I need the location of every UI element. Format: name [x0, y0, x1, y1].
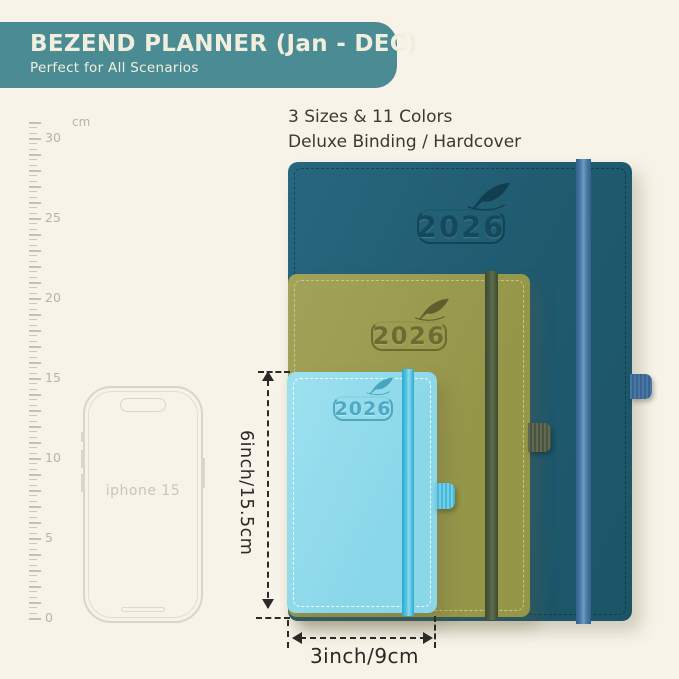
ruler-tick — [29, 538, 41, 540]
planner-small-elastic-band — [402, 369, 414, 616]
dim-width-left-tick — [287, 620, 289, 648]
planner-large-pen-loop — [630, 374, 652, 399]
planner-medium-emboss: 2026 — [371, 321, 447, 351]
ruler-tick — [29, 389, 37, 390]
feather-icon — [465, 182, 513, 212]
ruler-tick — [29, 271, 37, 272]
ruler-tick — [29, 575, 37, 576]
arrow-up-icon — [262, 371, 274, 381]
ruler-tick — [29, 127, 37, 128]
planner-small-year: 2026 — [333, 396, 393, 421]
ruler-tick — [29, 410, 41, 412]
feature-line-sizes: 3 Sizes & 11 Colors — [288, 105, 521, 130]
ruler-tick — [29, 186, 41, 188]
ruler-tick — [29, 319, 37, 320]
ruler-tick — [29, 138, 41, 140]
dim-width-line — [300, 637, 426, 639]
ruler-tick — [29, 202, 41, 204]
ruler-tick — [29, 191, 37, 192]
ruler-tick — [29, 522, 41, 524]
planner-large-year: 2026 — [417, 209, 505, 244]
ruler-tick — [29, 549, 37, 550]
planner-small: 2026 — [287, 372, 437, 613]
ruler-tick — [29, 431, 37, 432]
ruler-tick — [29, 479, 37, 480]
ruler-tick — [29, 490, 41, 492]
ruler-tick — [29, 458, 41, 460]
ruler-tick — [29, 277, 37, 278]
ruler-tick — [29, 415, 37, 416]
ruler-tick — [29, 266, 41, 268]
width-dimension-label: 3inch/9cm — [292, 644, 437, 668]
ruler-tick — [29, 197, 37, 198]
feature-text: 3 Sizes & 11 Colors Deluxe Binding / Har… — [288, 105, 521, 155]
ruler-tick-label: 15 — [45, 370, 61, 385]
ruler-tick — [29, 602, 41, 604]
ruler-tick — [29, 453, 37, 454]
ruler-tick — [29, 170, 41, 172]
home-indicator-icon — [121, 607, 165, 612]
dynamic-island-icon — [120, 398, 166, 412]
ruler-tick — [29, 287, 37, 288]
ruler-tick — [29, 165, 37, 166]
ruler-tick-label: 5 — [45, 530, 53, 545]
dim-height-line — [267, 380, 269, 608]
ruler-tick — [29, 175, 37, 176]
ruler-tick — [29, 618, 41, 620]
ruler-tick — [29, 149, 37, 150]
ruler-tick — [29, 554, 41, 556]
ruler-tick — [29, 255, 37, 256]
volume-up-button-icon — [81, 450, 83, 468]
ruler-tick — [29, 399, 37, 400]
ruler-tick — [29, 250, 41, 252]
ruler-tick — [29, 367, 37, 368]
iphone-label: iphone 15 — [85, 483, 201, 499]
ruler-tick — [29, 378, 41, 380]
ruler-tick — [29, 335, 37, 336]
volume-down-button-icon — [81, 474, 83, 492]
ruler-tick — [29, 591, 37, 592]
ruler-tick — [29, 373, 37, 374]
ruler-tick — [29, 485, 37, 486]
ruler-tick — [29, 143, 37, 144]
ruler-tick — [29, 495, 37, 496]
ruler-tick — [29, 421, 37, 422]
arrow-right-icon — [423, 632, 433, 644]
ruler-tick — [29, 330, 41, 332]
ruler-tick — [29, 245, 37, 246]
planner-small-emboss: 2026 — [333, 396, 393, 421]
ruler-tick — [29, 607, 37, 608]
ruler-tick — [29, 405, 37, 406]
ruler-tick — [29, 613, 37, 614]
ruler-tick — [29, 511, 37, 512]
ruler-tick — [29, 474, 41, 476]
ruler-tick — [29, 181, 37, 182]
ruler-tick-label: 30 — [45, 130, 61, 145]
ruler-tick — [29, 383, 37, 384]
ruler-tick — [29, 261, 37, 262]
ruler-tick — [29, 133, 37, 134]
ruler-tick-label: 0 — [45, 610, 53, 625]
ruler-tick-label: 25 — [45, 210, 61, 225]
product-infographic: BEZEND PLANNER (Jan - DEC) Perfect for A… — [0, 0, 679, 679]
iphone-outline: iphone 15 — [83, 386, 203, 623]
ruler-tick — [29, 426, 41, 428]
ruler-tick — [29, 218, 41, 220]
ruler-tick — [29, 357, 37, 358]
ruler-tick — [29, 517, 37, 518]
ruler-tick — [29, 293, 37, 294]
mute-switch-icon — [81, 432, 83, 442]
planner-large-emboss: 2026 — [417, 209, 505, 244]
ruler-tick — [29, 501, 37, 502]
ruler-tick — [29, 351, 37, 352]
ruler-tick — [29, 314, 41, 316]
height-dimension-label: 6inch/15.5cm — [236, 430, 256, 555]
ruler-tick — [29, 581, 37, 582]
ruler-tick — [29, 298, 41, 300]
ruler-tick — [29, 154, 41, 156]
arrow-down-icon — [262, 599, 274, 609]
ruler-tick-label: 20 — [45, 290, 61, 305]
ruler-tick — [29, 341, 37, 342]
ruler-tick — [29, 362, 41, 364]
ruler-tick — [29, 394, 41, 396]
ruler-tick — [29, 282, 41, 284]
ruler-tick — [29, 325, 37, 326]
ruler-tick — [29, 309, 37, 310]
ruler-tick — [29, 469, 37, 470]
planner-small-pen-loop — [435, 483, 455, 509]
ruler-tick — [29, 122, 41, 124]
arrow-left-icon — [292, 632, 302, 644]
ruler-tick — [29, 597, 37, 598]
ruler-tick — [29, 533, 37, 534]
planner-medium-year: 2026 — [371, 321, 447, 351]
ruler-tick — [29, 447, 37, 448]
ruler-tick — [29, 223, 37, 224]
ruler-tick — [29, 543, 37, 544]
ruler-tick — [29, 586, 41, 588]
feather-icon — [413, 298, 451, 322]
ruler-tick — [29, 506, 41, 508]
planner-large-elastic-band — [576, 159, 591, 624]
feather-icon — [365, 377, 395, 396]
ruler-tick — [29, 159, 37, 160]
ruler-tick — [29, 559, 37, 560]
ruler-tick — [29, 239, 37, 240]
planner-medium-pen-loop — [528, 423, 551, 452]
ruler-tick — [29, 527, 37, 528]
ruler-tick — [29, 442, 41, 444]
feature-line-binding: Deluxe Binding / Hardcover — [288, 130, 521, 155]
ruler-unit-label: cm — [72, 115, 90, 129]
ruler-tick-label: 10 — [45, 450, 61, 465]
ruler-tick — [29, 213, 37, 214]
ruler-tick — [29, 229, 37, 230]
ruler-tick — [29, 346, 41, 348]
ruler-tick — [29, 437, 37, 438]
ruler-tick — [29, 234, 41, 236]
power-button-icon — [203, 458, 205, 488]
planner-medium-elastic-band — [485, 271, 498, 620]
ruler-tick — [29, 570, 41, 572]
ruler-tick — [29, 303, 37, 304]
ruler-tick — [29, 463, 37, 464]
ruler-tick — [29, 565, 37, 566]
ruler-tick — [29, 207, 37, 208]
dim-height-bottom-tick — [256, 617, 290, 619]
iphone-screen-outline — [88, 391, 198, 618]
